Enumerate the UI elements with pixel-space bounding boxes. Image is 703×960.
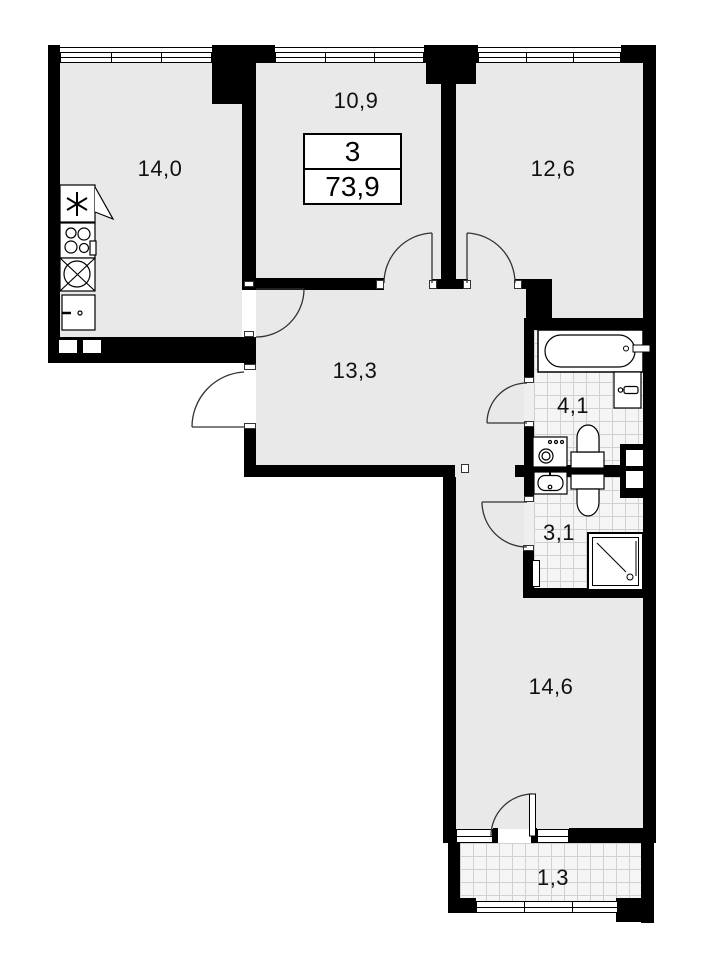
room-label-bathroom: 4,1 (557, 393, 589, 419)
room-label-kitchen-living: 14,0 (138, 156, 183, 182)
kitchen-cabinet-icon (62, 295, 95, 330)
washbasin-icon (614, 372, 641, 408)
room-label-bedroom-top: 10,9 (334, 88, 379, 114)
room-label-balcony: 1,3 (537, 865, 569, 891)
room-label-bedroom-bottom: 14,6 (529, 674, 574, 700)
door-arc-icon (192, 233, 536, 836)
toilet-icon (571, 425, 604, 468)
washing-machine-icon (533, 437, 567, 467)
apartment-spec-box: 3 73,9 (303, 133, 402, 205)
room-label-bedroom-right: 12,6 (531, 156, 576, 182)
spec-rooms-count: 3 (305, 135, 400, 170)
floor-plan: 14,0 10,9 12,6 13,3 4,1 3,1 14,6 1,3 3 7… (0, 0, 703, 960)
toilet-icon (571, 474, 604, 516)
washbasin-icon (534, 470, 567, 494)
shower-icon (588, 533, 643, 590)
stove-icon (60, 223, 96, 258)
bathtub-icon (538, 330, 650, 372)
spec-total-area: 73,9 (305, 170, 400, 203)
vent-icon (60, 185, 113, 222)
room-label-hallway: 13,3 (333, 358, 378, 384)
kitchen-sink-icon (60, 258, 95, 291)
room-label-toilet: 3,1 (543, 520, 575, 546)
